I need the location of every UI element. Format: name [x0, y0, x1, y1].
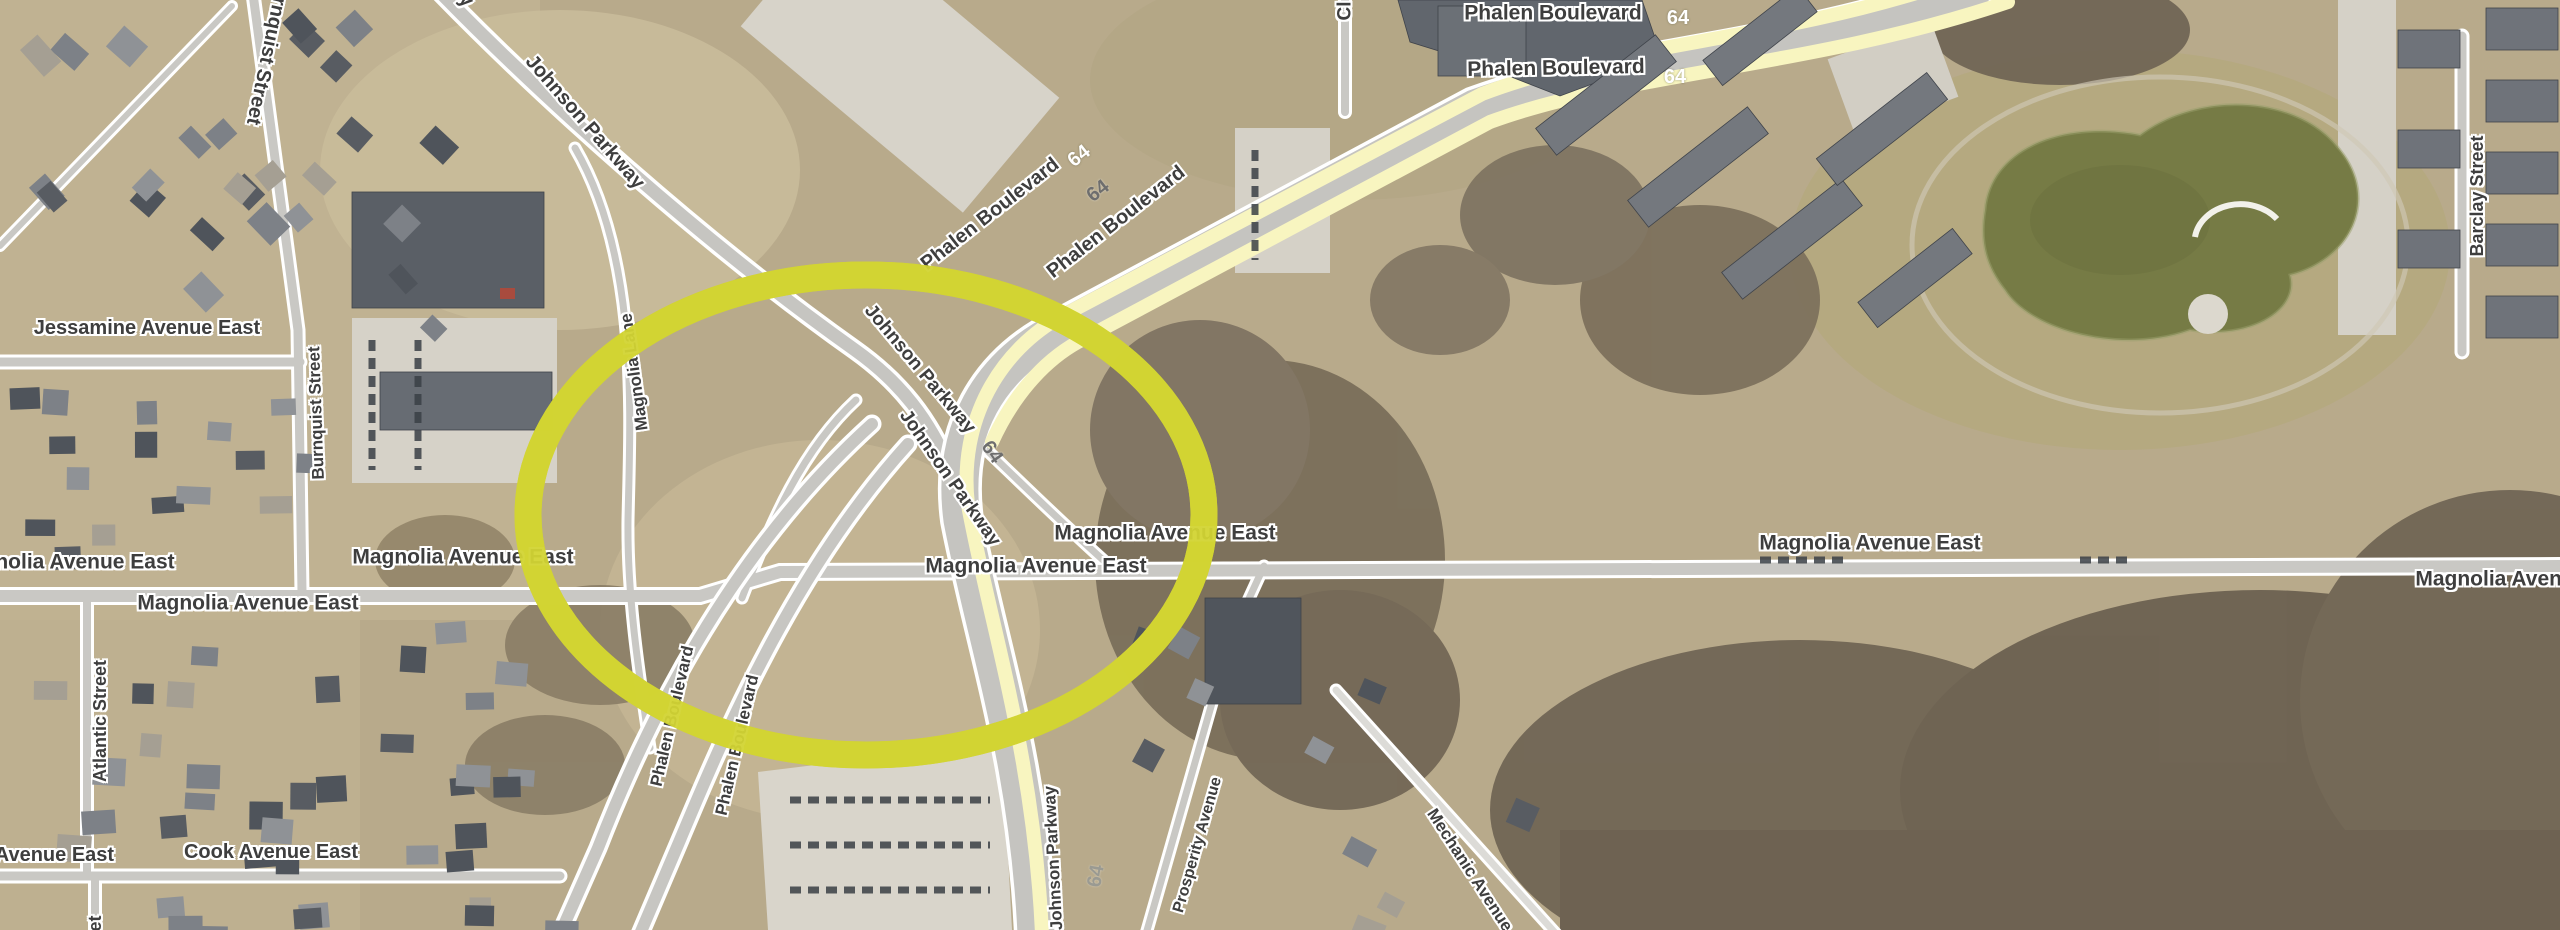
house-roof	[435, 621, 467, 644]
street-label-jessamine-avenue-east: Jessamine Avenue East	[34, 318, 260, 338]
house-roof	[135, 432, 157, 458]
house-roof	[34, 681, 68, 700]
aerial-imagery[interactable]	[0, 0, 2560, 930]
street-label-magnolia-ave-right: Magnolia Avenue East	[1759, 533, 1980, 554]
street-label-phalen-blvd-top-1: Phalen Boulevard	[1464, 3, 1641, 24]
house-roof	[92, 524, 115, 545]
street-label-magnolia-ave-center-r: Magnolia Avenue East	[1054, 523, 1275, 544]
park-plaza	[2188, 294, 2228, 334]
house-roof	[201, 926, 228, 930]
house-roof	[168, 916, 202, 930]
house-roof	[465, 905, 495, 926]
street-label-clarence-street-partial: Cl	[1336, 2, 1355, 21]
street-label-cook-avenue-east-cut: Cook Avenue East	[0, 845, 114, 865]
house-roof	[316, 775, 347, 803]
house-roof	[137, 401, 158, 425]
house-roof	[293, 907, 322, 929]
house-roof	[42, 389, 69, 416]
street-label-cook-avenue-east: Cook Avenue East	[184, 842, 358, 862]
street-label-street-bottom-partial: Street	[86, 915, 104, 930]
house-roof	[81, 809, 116, 835]
house-roof	[236, 451, 265, 470]
house-roof	[380, 734, 414, 753]
street-label-atlantic-street: Atlantic Street	[91, 660, 109, 782]
house-roof	[466, 692, 495, 710]
street-label-phalen-blvd-top-2: Phalen Boulevard	[1467, 56, 1645, 80]
house-roof	[49, 436, 75, 454]
street-label-magnolia-ave-left-cut: Magnolia Avenue East	[0, 552, 175, 573]
street-label-barclay-street: Barclay Street	[2468, 135, 2486, 256]
house-roof	[176, 486, 211, 505]
house-roof	[186, 764, 220, 789]
house-roof	[406, 845, 438, 864]
house-roof	[400, 646, 427, 674]
map-viewport[interactable]: Phalen BoulevardPhalen BoulevardClJohnso…	[0, 0, 2560, 930]
house-roof	[495, 661, 528, 687]
house-roof	[156, 896, 185, 918]
house-roof	[25, 519, 55, 536]
house-roof	[191, 646, 219, 666]
route-shield-64: 64	[1664, 67, 1686, 87]
route-shield-64: 64	[1084, 863, 1108, 888]
street-label-magnolia-ave-center-2: Magnolia Avenue East	[925, 556, 1146, 577]
house-roof	[160, 815, 188, 839]
house-roof	[184, 792, 215, 810]
street-label-burnquist-street: Burnquist Street	[305, 346, 327, 480]
street-label-magnolia-ave-left: Magnolia Avenue East	[137, 593, 358, 614]
house-roof	[315, 676, 340, 703]
street-label-magnolia-ave-right-edge: Magnolia Avenue East	[2415, 569, 2560, 590]
house-roof	[260, 496, 293, 514]
house-roof	[67, 467, 90, 490]
house-roof	[456, 764, 491, 787]
house-roof	[455, 823, 488, 849]
house-roof	[166, 681, 194, 708]
house-roof	[445, 850, 474, 873]
house-roof	[545, 920, 579, 930]
street-label-magnolia-ave-mid: Magnolia Avenue East	[352, 547, 573, 568]
house-roof	[290, 783, 316, 810]
house-roof	[271, 398, 296, 415]
house-roof	[9, 387, 40, 410]
house-roof	[140, 733, 162, 758]
house-roof	[132, 683, 154, 704]
house-roof	[207, 421, 232, 441]
house-roof	[493, 777, 521, 798]
route-shield-64: 64	[1667, 8, 1689, 28]
